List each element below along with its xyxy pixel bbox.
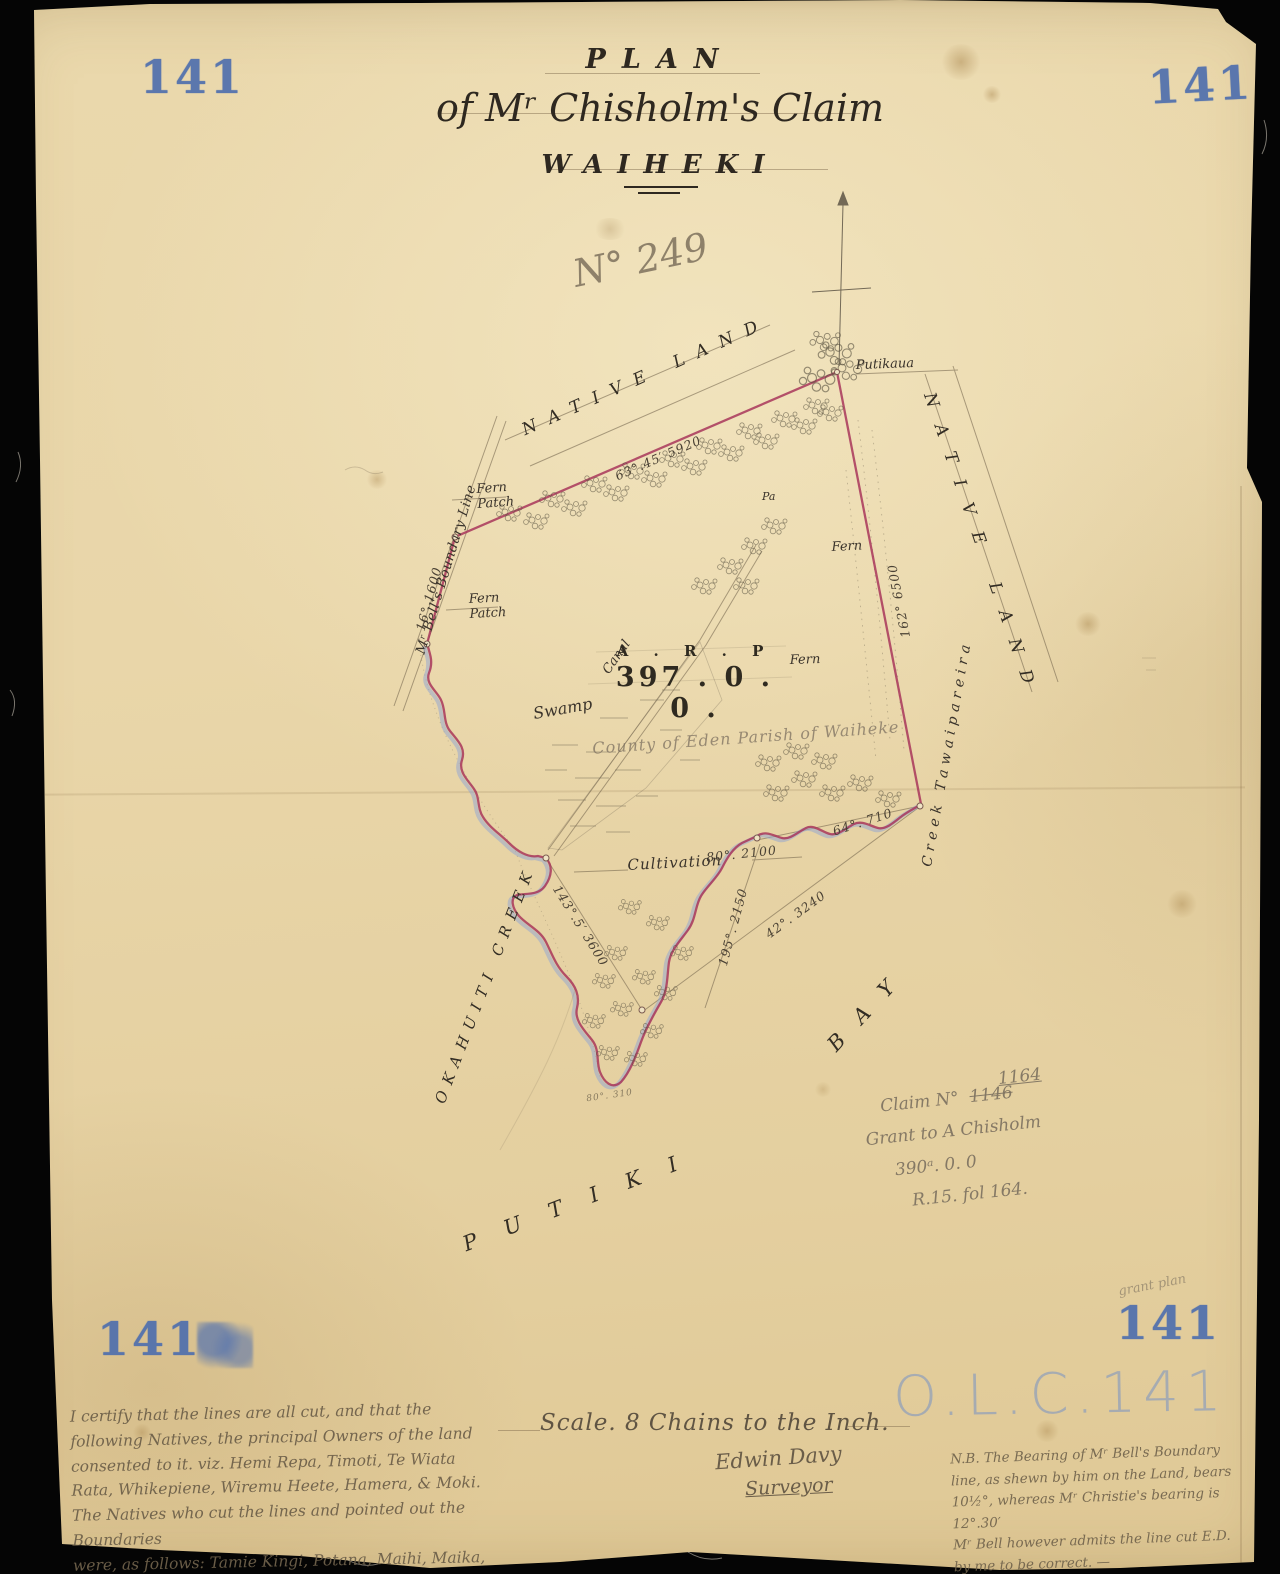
title-flourish [624, 186, 698, 188]
cultivation-label: Cultivation [627, 851, 723, 874]
certification-block: I certify that the lines are all cut, an… [70, 1395, 530, 1574]
nb-note-block: N.B. The Bearing of Mʳ Bell's Boundary l… [950, 1439, 1266, 1574]
area-header: A . R . P [600, 642, 790, 660]
creek-tawaipareira-label: Creek Tawaipareira [919, 639, 975, 868]
area-block: A . R . P 397 . 0 . 0 . [600, 642, 790, 724]
stamp-number-top-right: 141 [1147, 55, 1255, 114]
claim-new-number: 1164 [996, 1059, 1042, 1096]
area-value: 397 . 0 . 0 . [600, 662, 790, 724]
okahuiti-creek-label: OKAHUITI CREEK [431, 862, 539, 1106]
surveyor-role: Surveyor [744, 1474, 833, 1501]
fern-label-upper: Fern [831, 538, 862, 555]
claim-prefix: Claim N° [879, 1088, 960, 1116]
stamp-number-bottom-right: 141 [1116, 1296, 1221, 1350]
plan-title-line3: WAIHEKI [400, 150, 920, 180]
bay-label: BAY [822, 959, 914, 1056]
olc-reference: O.L.C.141 [892, 1359, 1228, 1430]
photo-background: 63°.45′ 5920 16° 1600 162° 6500 80°. 210… [0, 0, 1280, 1574]
native-land-label-top: NATIVE LAND [519, 312, 773, 440]
pa-label: Pa [762, 490, 775, 503]
plan-title-line2: of Mʳ Chisholm's Claim [400, 86, 920, 130]
fern-label-lower: Fern [789, 652, 820, 668]
stamp-number-bottom-left: 141 [97, 1312, 202, 1366]
fern-patch-label-lower: Fern Patch [468, 590, 523, 623]
stamp-number-top-left: 141 [140, 50, 245, 104]
native-land-label-right: NATIVE LAND [919, 390, 1044, 703]
ink-smudge [197, 1322, 253, 1368]
swamp-label: Swamp [532, 694, 594, 723]
bells-boundary-label: Mʳ Bell's Boundary Line [413, 483, 480, 656]
scale-text: Scale. 8 Chains to the Inch. [540, 1410, 890, 1436]
claim-notes: Claim N° 1146 1164 Grant to A Chisholm 3… [879, 1074, 1050, 1219]
putiki-bay-label: PUTIKI [459, 1141, 708, 1256]
title-flourish [638, 192, 680, 194]
pencil-claim-number: N° 249 [569, 224, 712, 295]
surveyor-signature: Edwin Davy [714, 1442, 842, 1475]
plan-title-line1: PLAN [400, 44, 920, 75]
fern-patch-label-upper: Fern Patch [476, 479, 532, 513]
putikaua-label: Putikaua [855, 356, 914, 373]
